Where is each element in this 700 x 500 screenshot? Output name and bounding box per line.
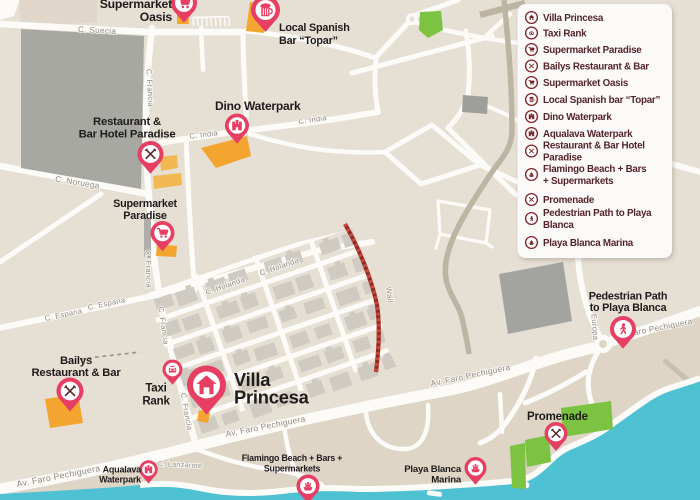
svg-text:Bailys Restaurant & Bar: Bailys Restaurant & Bar: [543, 61, 649, 72]
svg-text:Dino Waterpark: Dino Waterpark: [543, 112, 612, 123]
svg-text:C. Francia: C. Francia: [143, 250, 153, 289]
svg-text:Taxi Rank: Taxi Rank: [543, 28, 587, 39]
svg-text:Playa Blanca Marina: Playa Blanca Marina: [543, 238, 634, 249]
svg-text:Restaurant &Bar Hotel Paradise: Restaurant &Bar Hotel Paradise: [79, 116, 176, 141]
svg-text:Aqualava Waterpark: Aqualava Waterpark: [543, 129, 633, 140]
svg-text:Villa Princesa: Villa Princesa: [543, 13, 604, 24]
svg-text:Supermarket Paradise: Supermarket Paradise: [543, 45, 642, 56]
svg-text:Pedestrian Pathto Playa Blanca: Pedestrian Pathto Playa Blanca: [589, 291, 668, 315]
svg-text:Promenade: Promenade: [527, 411, 588, 423]
svg-text:Supermarket Oasis: Supermarket Oasis: [543, 78, 629, 89]
svg-text:AqualavaWaterpark: AqualavaWaterpark: [99, 465, 142, 485]
svg-text:Promenade: Promenade: [543, 195, 595, 206]
svg-text:Local Spanish bar “Topar”: Local Spanish bar “Topar”: [543, 95, 660, 106]
svg-text:TaxiRank: TaxiRank: [142, 383, 170, 408]
svg-text:Dino Waterpark: Dino Waterpark: [215, 99, 301, 113]
